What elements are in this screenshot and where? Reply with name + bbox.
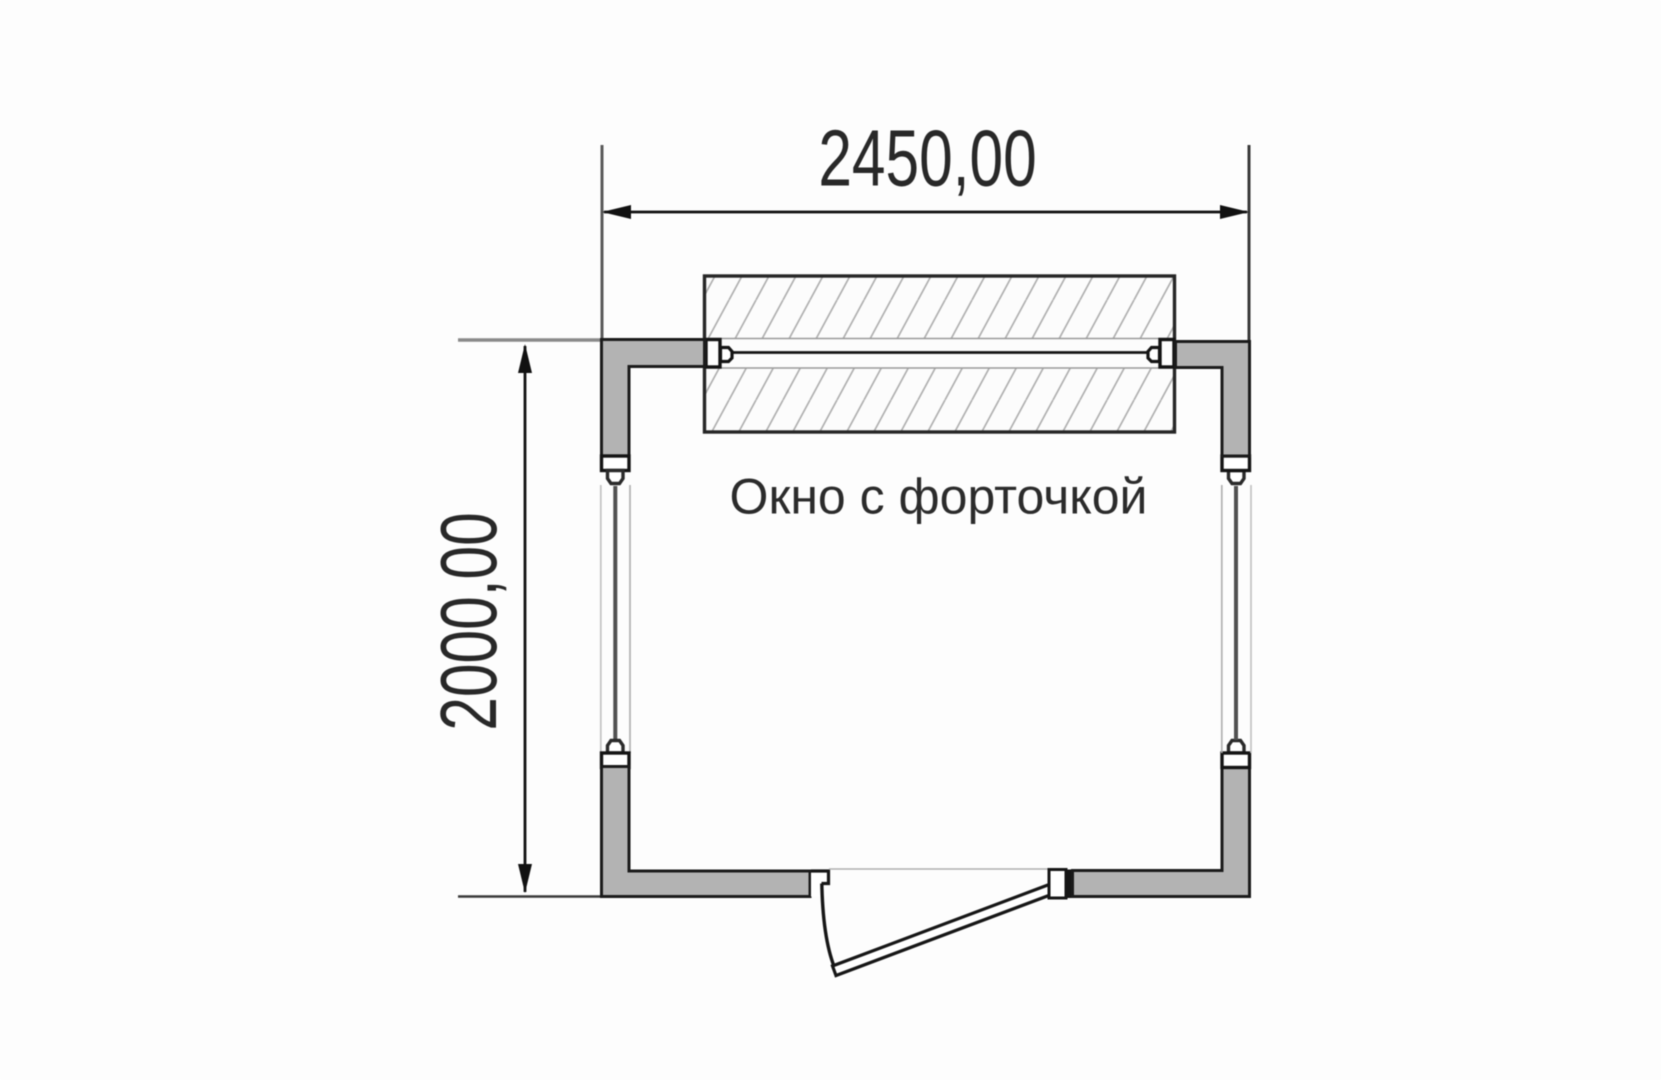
svg-text:2450,00: 2450,00 (818, 114, 1036, 203)
svg-text:Окно с форточкой: Окно с форточкой (730, 469, 1148, 525)
svg-text:2000,00: 2000,00 (425, 512, 514, 730)
